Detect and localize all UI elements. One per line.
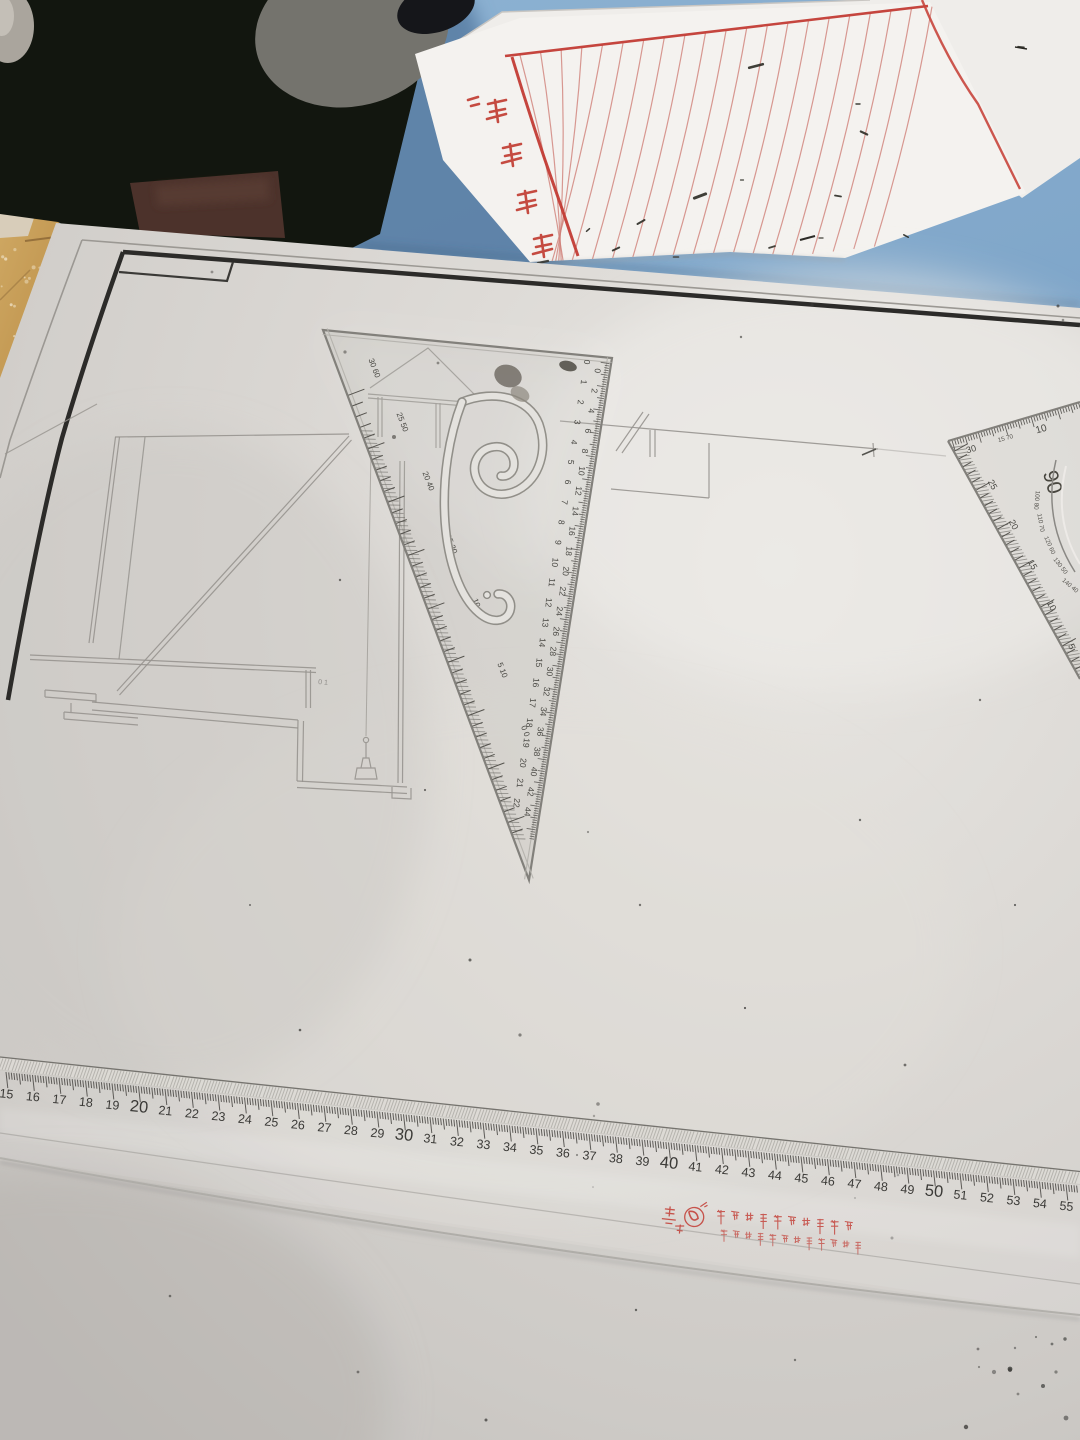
- svg-text:53: 53: [1006, 1193, 1021, 1208]
- svg-text:54: 54: [1032, 1196, 1047, 1211]
- svg-text:12: 12: [543, 597, 554, 608]
- svg-text:10: 10: [576, 466, 587, 477]
- svg-text:40: 40: [659, 1153, 679, 1173]
- svg-text:38: 38: [532, 746, 543, 757]
- svg-text:17: 17: [52, 1092, 67, 1107]
- svg-text:49: 49: [900, 1182, 915, 1197]
- svg-text:39: 39: [635, 1154, 650, 1169]
- svg-text:55: 55: [1059, 1199, 1074, 1214]
- svg-text:13: 13: [540, 617, 551, 628]
- svg-text:43: 43: [741, 1165, 756, 1180]
- svg-text:21: 21: [158, 1103, 173, 1118]
- svg-text:16: 16: [25, 1089, 40, 1104]
- svg-text:24: 24: [554, 606, 565, 617]
- svg-text:47: 47: [847, 1176, 862, 1191]
- svg-text:25: 25: [264, 1114, 279, 1129]
- svg-text:52: 52: [979, 1190, 994, 1205]
- svg-text:29: 29: [370, 1126, 385, 1141]
- svg-text:41: 41: [688, 1159, 703, 1174]
- svg-text:44: 44: [522, 807, 533, 818]
- svg-text:33: 33: [476, 1137, 491, 1152]
- svg-text:30: 30: [544, 666, 555, 677]
- svg-text:36: 36: [555, 1145, 570, 1160]
- svg-text:48: 48: [873, 1179, 888, 1194]
- svg-text:18: 18: [78, 1095, 93, 1110]
- svg-text:22: 22: [557, 586, 568, 597]
- svg-text:20: 20: [560, 566, 571, 577]
- svg-text:51: 51: [953, 1187, 968, 1202]
- svg-text:30: 30: [394, 1125, 414, 1145]
- svg-text:34: 34: [502, 1140, 517, 1155]
- svg-text:22: 22: [511, 798, 522, 809]
- svg-text:16: 16: [531, 677, 542, 688]
- svg-text:21: 21: [515, 778, 526, 789]
- svg-text:19: 19: [521, 738, 532, 749]
- svg-text:23: 23: [211, 1109, 226, 1124]
- svg-text:26: 26: [551, 626, 562, 637]
- svg-text:38: 38: [608, 1151, 623, 1166]
- svg-text:14: 14: [570, 506, 581, 517]
- svg-text:18: 18: [564, 546, 575, 557]
- svg-text:44: 44: [767, 1168, 782, 1183]
- svg-text:40: 40: [529, 766, 540, 777]
- svg-text:50: 50: [924, 1181, 944, 1201]
- svg-text:42: 42: [525, 787, 536, 798]
- svg-text:18: 18: [524, 718, 535, 729]
- svg-text:26: 26: [290, 1117, 305, 1132]
- svg-text:28: 28: [343, 1123, 358, 1138]
- svg-text:37: 37: [582, 1148, 597, 1163]
- svg-text:20: 20: [518, 758, 529, 769]
- svg-text:17: 17: [527, 698, 538, 709]
- svg-text:32: 32: [541, 686, 552, 697]
- svg-text:12: 12: [573, 486, 584, 497]
- svg-text:16: 16: [567, 526, 578, 537]
- svg-text:32: 32: [449, 1134, 464, 1149]
- svg-text:11: 11: [547, 578, 558, 588]
- svg-text:20: 20: [129, 1097, 149, 1117]
- svg-text:19: 19: [105, 1098, 120, 1113]
- svg-text:14: 14: [537, 637, 548, 648]
- svg-text:28: 28: [548, 646, 559, 657]
- svg-text:45: 45: [794, 1171, 809, 1186]
- svg-text:15: 15: [0, 1086, 14, 1101]
- svg-text:34: 34: [538, 706, 549, 717]
- svg-text:10: 10: [550, 557, 561, 568]
- svg-text:35: 35: [529, 1143, 544, 1158]
- svg-text:36: 36: [535, 726, 546, 737]
- svg-text:22: 22: [184, 1106, 199, 1121]
- svg-text:0 1: 0 1: [318, 679, 328, 687]
- svg-text:15: 15: [534, 657, 545, 668]
- svg-text:46: 46: [820, 1173, 835, 1188]
- svg-text:27: 27: [317, 1120, 332, 1135]
- svg-text:24: 24: [237, 1112, 252, 1127]
- svg-text:42: 42: [714, 1162, 729, 1177]
- svg-text:31: 31: [423, 1131, 438, 1146]
